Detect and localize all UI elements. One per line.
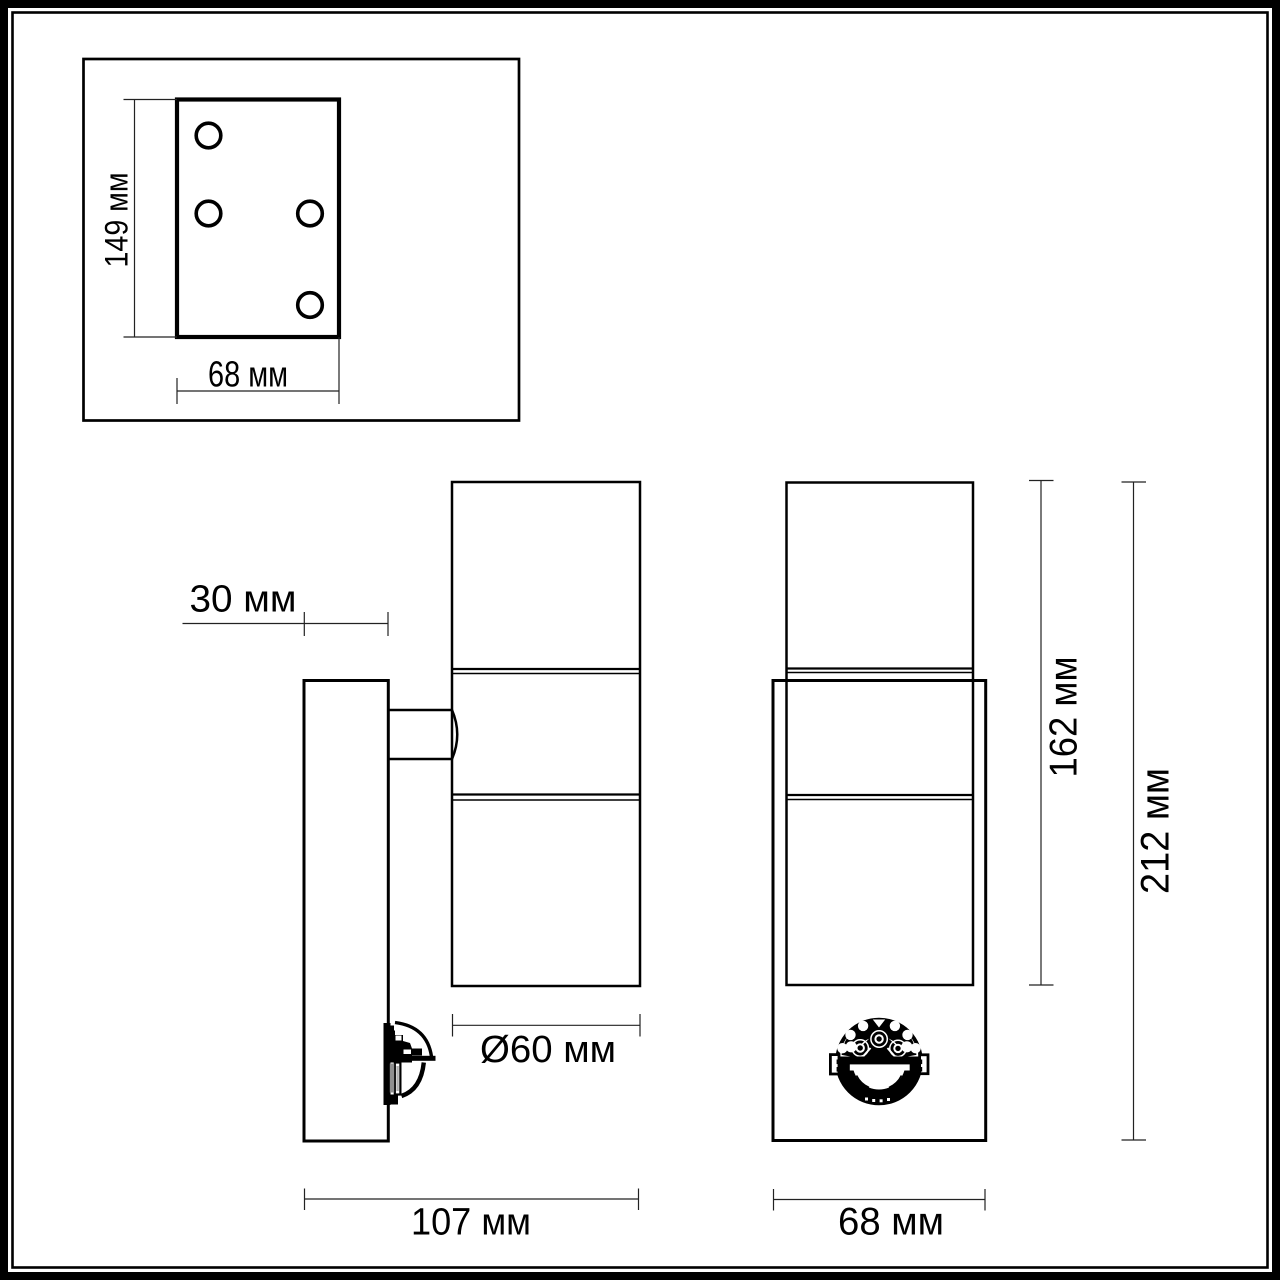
svg-text:Ø60 мм: Ø60 мм (480, 1029, 616, 1071)
svg-text:149 мм: 149 мм (99, 173, 135, 268)
svg-text:212 мм: 212 мм (1134, 768, 1178, 894)
svg-text:162 мм: 162 мм (1043, 657, 1086, 778)
svg-text:68 мм: 68 мм (208, 354, 288, 395)
svg-text:30 мм: 30 мм (190, 579, 297, 621)
svg-text:68 мм: 68 мм (838, 1201, 944, 1244)
svg-text:107 мм: 107 мм (411, 1202, 531, 1244)
